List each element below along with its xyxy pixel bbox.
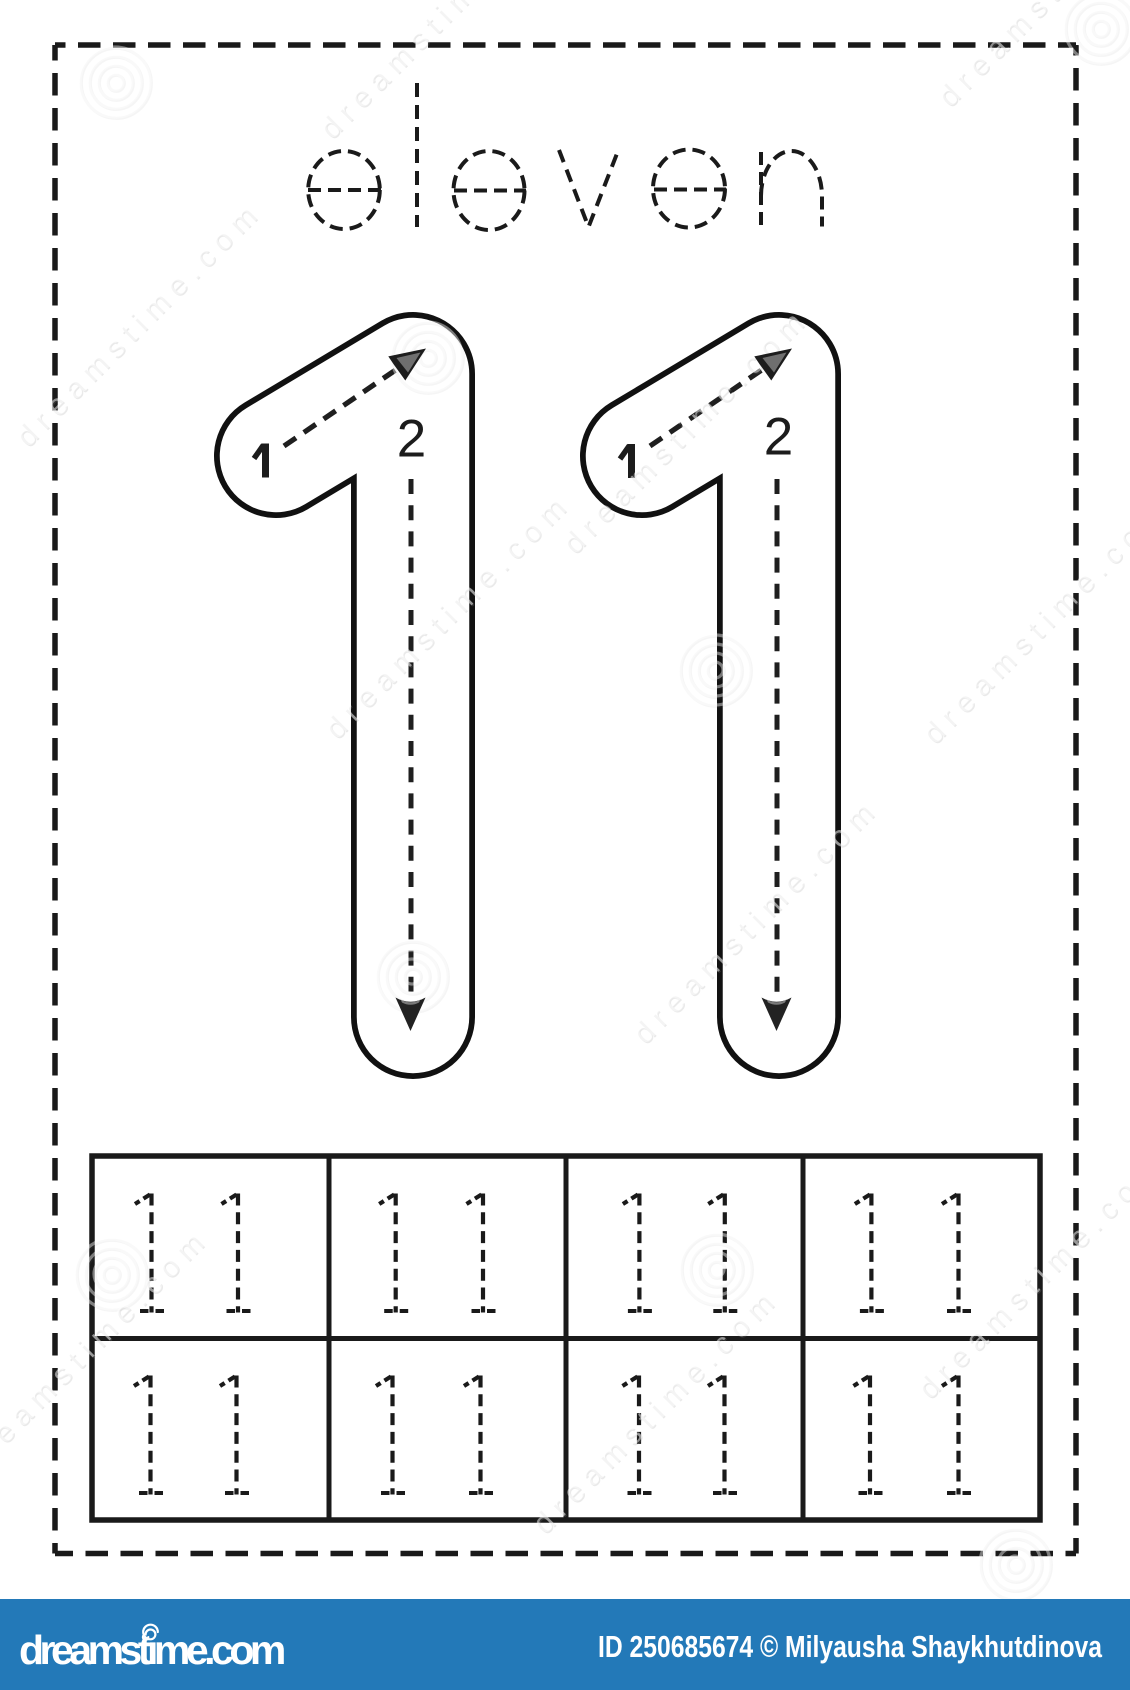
svg-text:2: 2 bbox=[397, 410, 426, 469]
svg-text:2: 2 bbox=[764, 408, 793, 467]
svg-text:dreamstıme.com: dreamstıme.com bbox=[19, 1627, 284, 1673]
svg-text:ID 250685674 © Milyausha Shayk: ID 250685674 © Milyausha Shaykhutdinova bbox=[598, 1629, 1103, 1664]
